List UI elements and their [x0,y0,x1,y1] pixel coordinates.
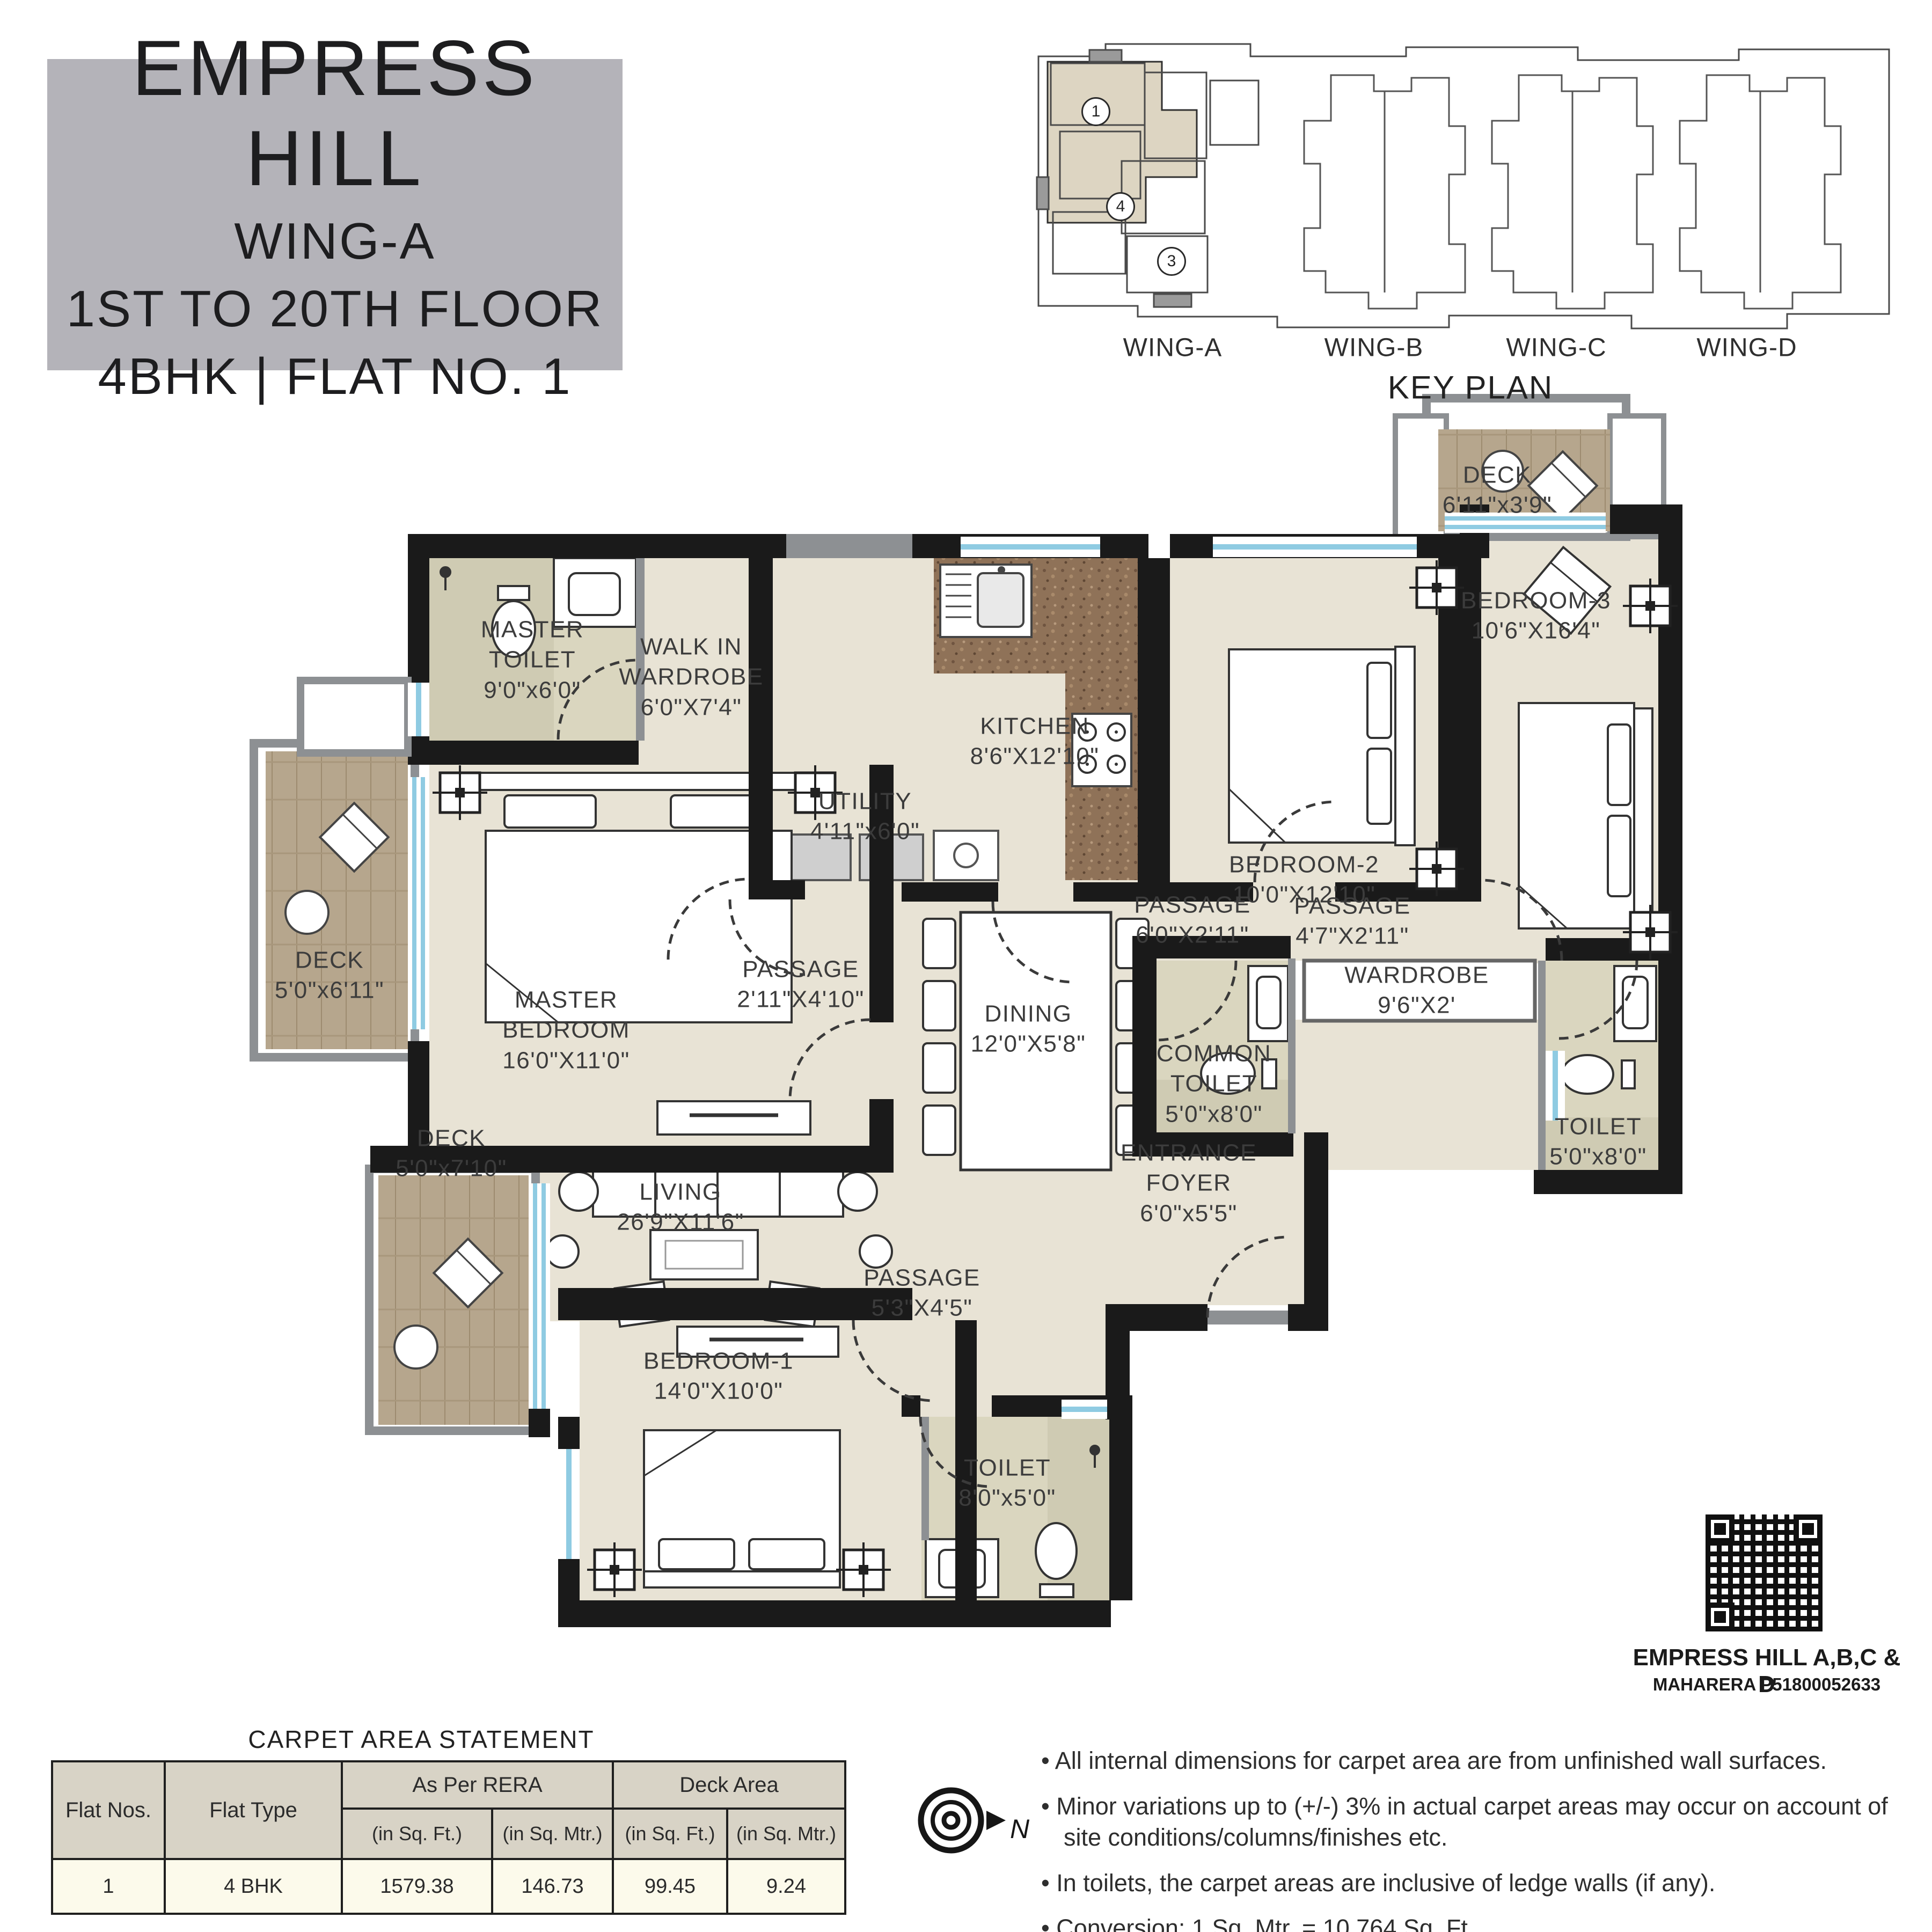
room-label-passage-4: PASSAGE 5'3"X4'5" [863,1263,980,1324]
qr-finder-icon [1706,1602,1735,1631]
carpet-area-title: CARPET AREA STATEMENT [51,1725,792,1754]
keyplan-marker-3: 3 [1157,247,1186,276]
table-row: 1 4 BHK 1579.38 146.73 99.45 9.24 [52,1859,845,1914]
cell-flat-no: 1 [52,1859,165,1914]
note-item: • Minor variations up to (+/-) 3% in act… [1041,1791,1926,1854]
qr-finder-icon [1706,1514,1735,1543]
north-compass-icon [921,1790,1006,1850]
north-label: N [1010,1813,1029,1845]
col-header-flat-type: Flat Type [165,1761,342,1859]
title-block: EMPRESS HILL WING-A 1ST TO 20TH FLOOR 4B… [47,59,623,370]
note-item: • All internal dimensions for carpet are… [1041,1745,1926,1777]
col-header-flat-nos: Flat Nos. [52,1761,165,1859]
cell-rera-sqmtr: 146.73 [492,1859,613,1914]
keyplan-marker-1: 1 [1081,97,1110,126]
floor-plan-brochure-page: EMPRESS HILL WING-A 1ST TO 20TH FLOOR 4B… [0,0,1932,1932]
room-label-master-toilet: MASTER TOILET 9'0"x6'0" [481,615,584,706]
room-label-walkin-wardrobe: WALK IN WARDROBE 6'0"X7'4" [619,632,764,723]
qr-rera-number: MAHARERA P51800052633 [1633,1674,1901,1695]
room-label-bedroom-3: BEDROOM-3 10'6"X16'4" [1461,586,1611,647]
cell-flat-type: 4 BHK [165,1859,342,1914]
room-label-passage-3: PASSAGE 4'7"X2'11" [1294,891,1411,952]
room-label-bedroom-1: BEDROOM-1 14'0"X10'0" [643,1346,794,1407]
subheader-rera-sqmtr: (in Sq. Mtr.) [492,1809,613,1859]
room-label-wardrobe: WARDROBE 9'6"X2' [1344,961,1489,1021]
note-item: • In toilets, the carpet areas are inclu… [1041,1868,1926,1899]
subheader-deck-sqmtr: (in Sq. Mtr.) [727,1809,845,1859]
room-label-kitchen: KITCHEN 8'6"X12'10" [970,712,1100,772]
wing-name: WING-A [234,212,435,271]
keyplan-wing-c-label: WING-C [1506,333,1606,363]
keyplan-caption: KEY PLAN [1388,369,1553,406]
disclaimer-notes: • All internal dimensions for carpet are… [1041,1745,1926,1932]
note-item: • Conversion: 1 Sq. Mtr. = 10.764 Sq. Ft… [1041,1913,1926,1932]
cell-deck-sqmtr: 9.24 [727,1859,845,1914]
room-label-dining: DINING 12'0"X5'8" [971,999,1086,1060]
keyplan-wing-b-label: WING-B [1324,333,1424,363]
subheader-deck-sqft: (in Sq. Ft.) [613,1809,727,1859]
keyplan-wing-a-label: WING-A [1123,333,1223,363]
room-label-passage-1: PASSAGE 2'11"X4'10" [737,955,864,1015]
keyplan-wing-d-label: WING-D [1696,333,1797,363]
key-plan-drawing [1037,44,1889,328]
keyplan-marker-4: 4 [1106,192,1135,221]
room-label-deck-lower-left: DECK 5'0"x7'10" [396,1124,507,1184]
maharera-qr-code [1700,1509,1828,1637]
carpet-area-table: Flat Nos. Flat Type As Per RERA Deck Are… [51,1760,846,1915]
subheader-rera-sqft: (in Sq. Ft.) [342,1809,492,1859]
room-label-toilet-right: TOILET 5'0"x8'0" [1549,1112,1646,1173]
room-label-utility: UTILITY 4'11"x6'0" [810,787,920,847]
room-label-passage-2: PASSAGE 6'0"X2'11" [1134,890,1251,951]
room-label-deck-left: DECK 5'0"x6'11" [275,946,384,1006]
room-label-deck-top-right: DECK 6'11"x3'9" [1443,460,1552,521]
room-label-master-bedroom: MASTER BEDROOM 16'0"X11'0" [502,985,630,1076]
qr-finder-icon [1794,1514,1823,1543]
col-group-deck: Deck Area [613,1761,845,1809]
floor-range: 1ST TO 20TH FLOOR [67,280,604,339]
col-group-rera: As Per RERA [342,1761,613,1809]
room-label-living: LIVING 26'9"X11'6" [617,1177,744,1238]
project-name: EMPRESS HILL [47,23,623,203]
room-label-toilet-bottom: TOILET 8'0"x5'0" [958,1453,1056,1514]
room-label-common-toilet: COMMON TOILET 5'0"x8'0" [1157,1039,1271,1130]
cell-deck-sqft: 99.45 [613,1859,727,1914]
cell-rera-sqft: 1579.38 [342,1859,492,1914]
unit-info: 4BHK | FLAT NO. 1 [98,347,572,406]
room-label-entrance-foyer: ENTRANCE FOYER 6'0"x5'5" [1121,1138,1257,1229]
